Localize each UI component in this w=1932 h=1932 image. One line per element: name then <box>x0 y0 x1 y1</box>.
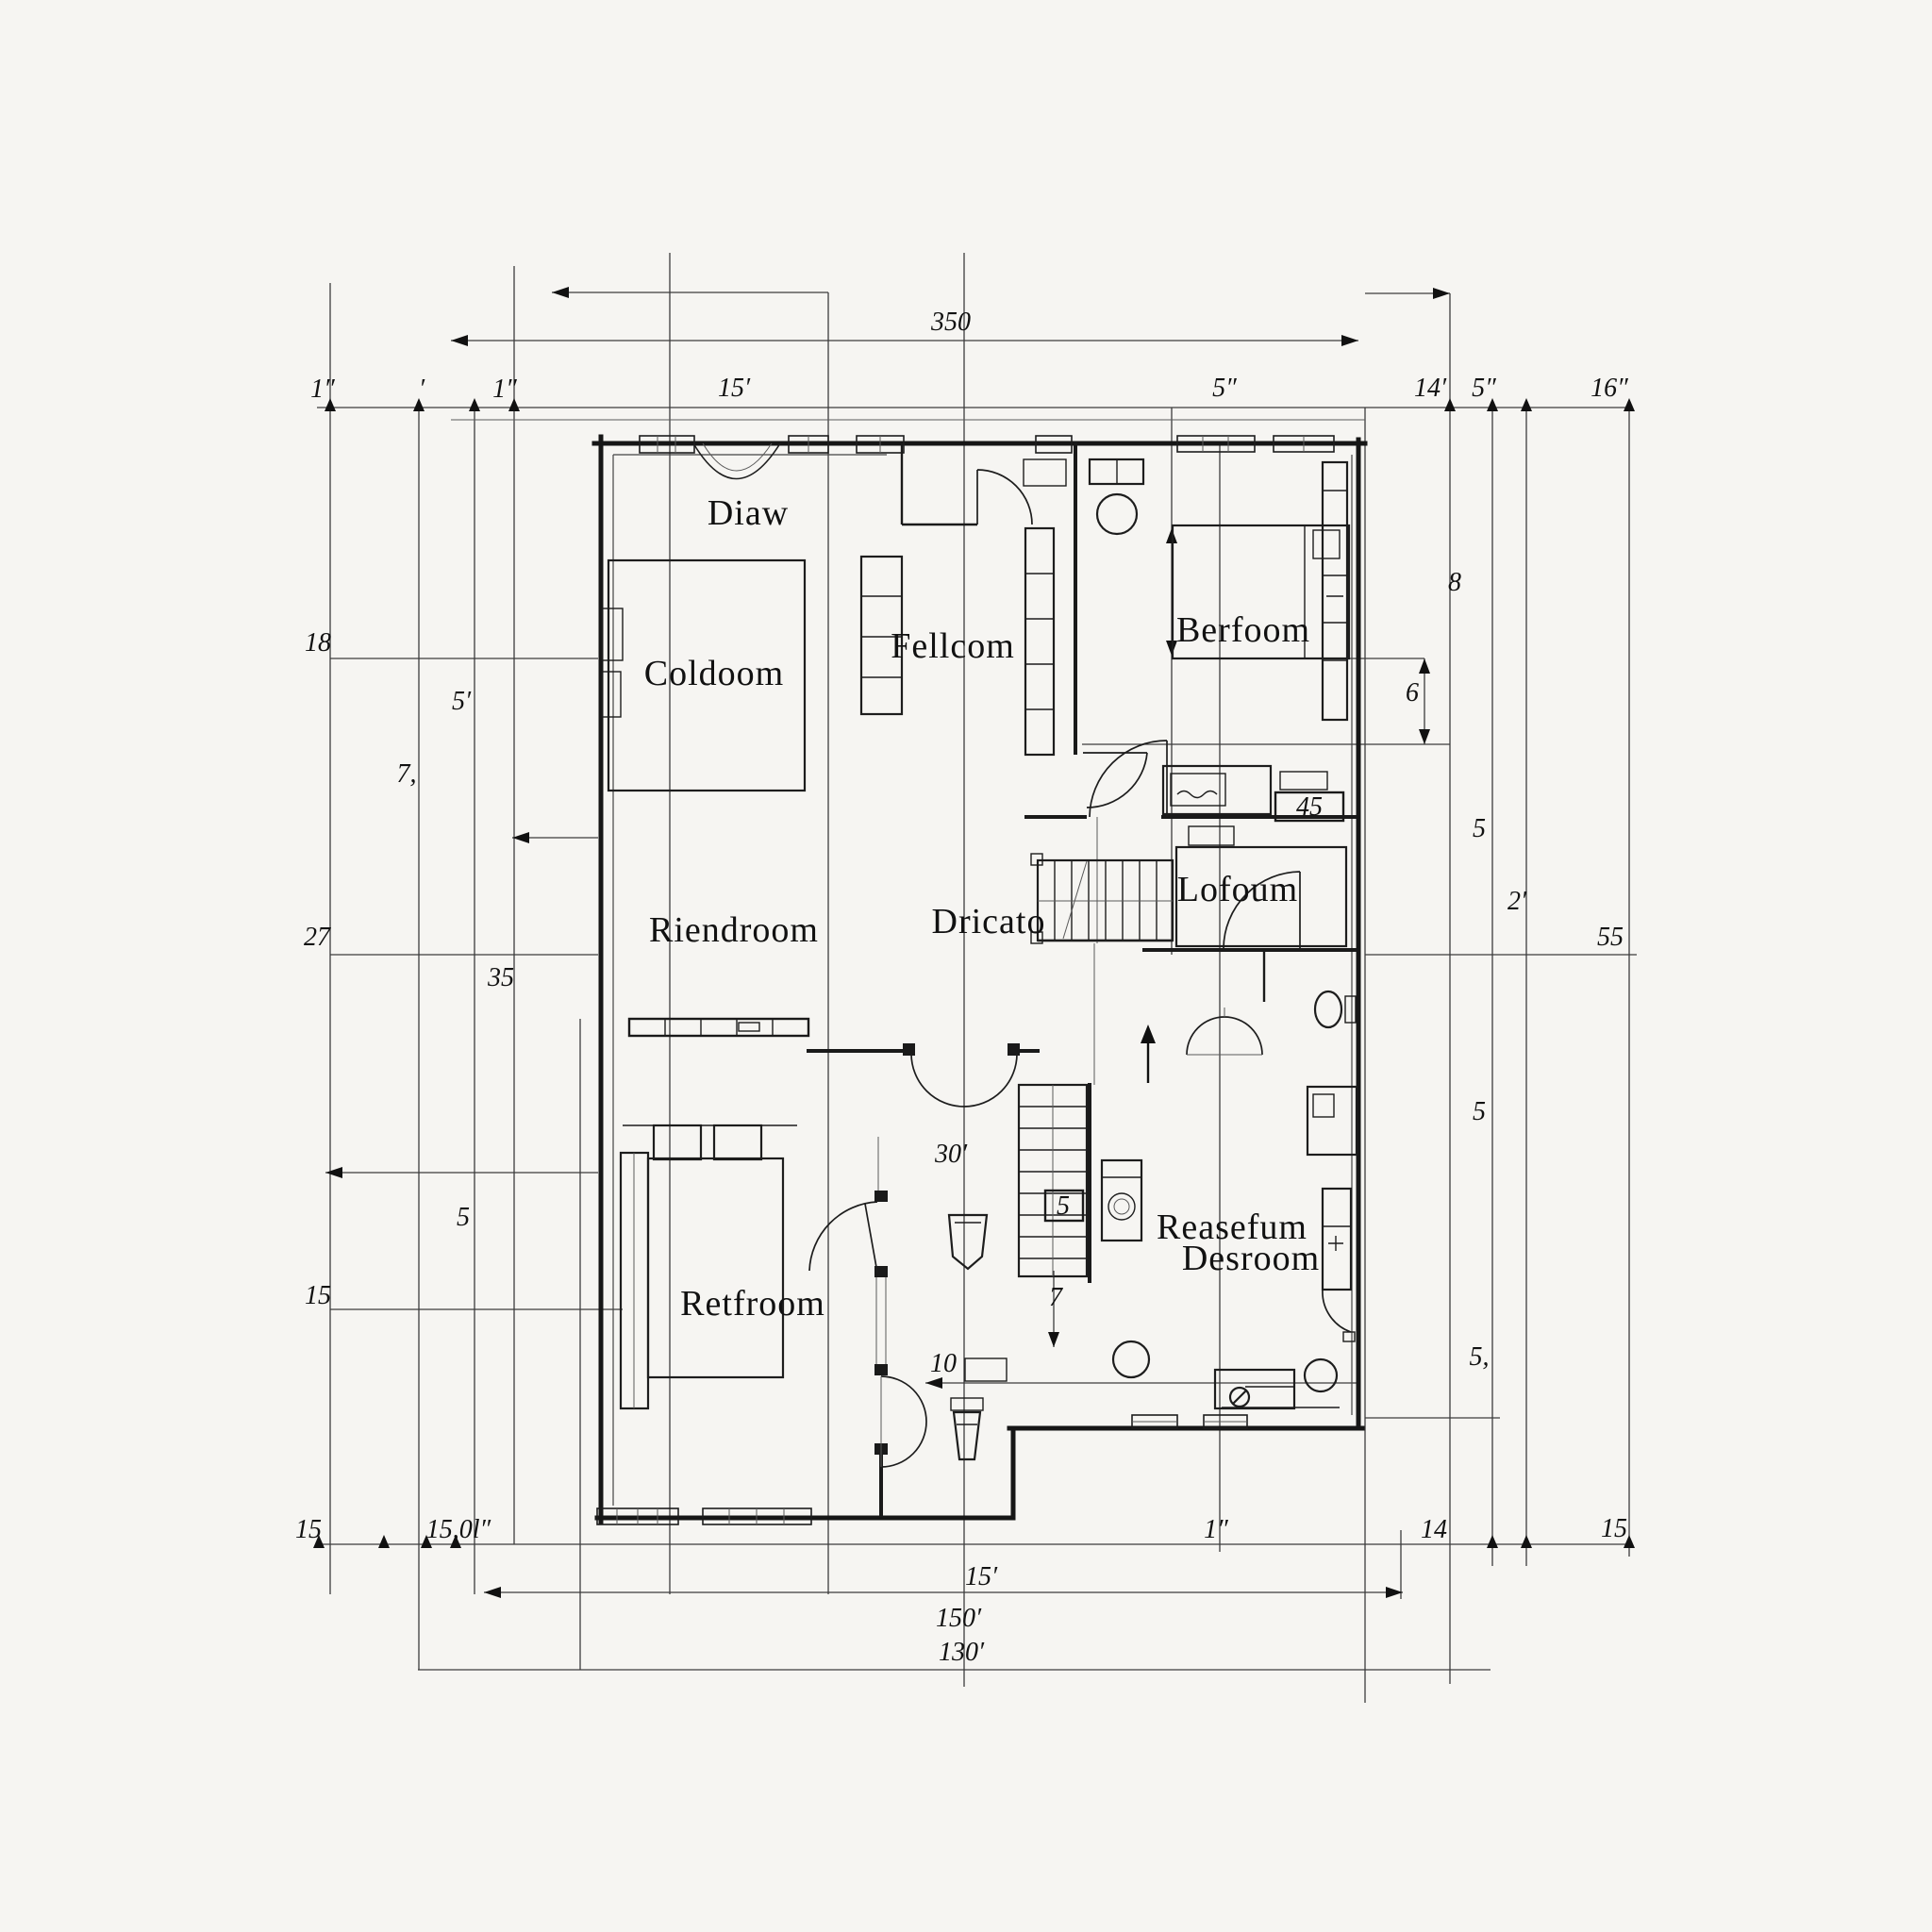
dim-bottom-150l: 15,0l″ <box>426 1515 491 1544</box>
stool-icon <box>1113 1341 1149 1377</box>
dim-right-55: 55 <box>1597 923 1624 952</box>
dim-bottom-150ft: 150′ <box>936 1604 982 1633</box>
windows <box>597 436 1340 1524</box>
dim-left-5: 5 <box>457 1203 470 1232</box>
room-label-lofoum: Lofoum <box>1177 870 1298 909</box>
wall-closet-icon <box>1307 1087 1357 1155</box>
corridor-closet-icon <box>1323 1189 1351 1290</box>
dim-label-5-box: 5 <box>1057 1191 1070 1221</box>
room-label-desroom: Desroom <box>1182 1239 1320 1278</box>
toilet-icon <box>1315 991 1356 1027</box>
dim-label-45: 45 <box>1296 792 1323 822</box>
dim-bottom-1in: 1″ <box>1204 1515 1228 1544</box>
room-label-riendroom: Riendroom <box>649 910 819 950</box>
interior-walls <box>629 443 1355 1515</box>
dim-top-4: 15′ <box>718 374 751 403</box>
dim-left-15b: 15 <box>295 1515 322 1544</box>
dim-left-27: 27 <box>304 923 331 952</box>
hall-double-door-left <box>911 1054 964 1107</box>
retfroom-wardrobe-icon <box>621 1153 648 1408</box>
dimension-labels: 1″ ′ 1″ 15′ 5″ 14′ 5″ 16″ 350 18 5′ 7, 2… <box>295 308 1628 1667</box>
dim-bottom-15ft: 15′ <box>965 1562 998 1591</box>
dim-350: 350 <box>930 308 971 337</box>
shower-door-icon <box>1187 1008 1262 1055</box>
dim-left-18: 18 <box>305 628 331 658</box>
room-labels: Diaw Coldoom Fellcom Berfoom Riendroom D… <box>644 493 1320 1324</box>
room-label-diaw: Diaw <box>708 493 789 533</box>
dim-top-2: ′ <box>419 375 425 404</box>
dim-right-5b: 5 <box>1473 1097 1486 1126</box>
dim-right-8: 8 <box>1448 568 1461 597</box>
hall-toilet-icon <box>951 1398 983 1459</box>
dimension-arrows <box>313 287 1635 1598</box>
dim-top-5: 5″ <box>1212 374 1237 403</box>
dim-right-5a: 5 <box>1473 814 1486 843</box>
dim-right-6: 6 <box>1406 678 1419 708</box>
dim-mid-30ft: 30′ <box>934 1140 968 1169</box>
chair-icon <box>1305 1359 1337 1391</box>
dim-top-8: 16″ <box>1591 374 1628 403</box>
dim-mid-7: 7 <box>1049 1283 1063 1312</box>
dim-top-7: 5″ <box>1472 374 1496 403</box>
dim-left-7: 7, <box>397 759 417 789</box>
closet-door-arc <box>1323 1290 1351 1332</box>
kitchen-door-arc <box>1087 753 1147 808</box>
stairs-upper <box>1019 1085 1087 1276</box>
dim-mid-10: 10 <box>930 1349 957 1378</box>
counter-icon <box>1024 459 1066 486</box>
room-label-dricato: Dricato <box>932 902 1046 941</box>
room-label-berfoom: Berfoom <box>1176 610 1310 650</box>
retfroom-door-leaf <box>865 1204 877 1273</box>
dim-top-6: 14′ <box>1414 374 1447 403</box>
dim-left-15a: 15 <box>305 1281 331 1310</box>
round-table-icon <box>1097 494 1137 534</box>
room-label-retfroom: Retfroom <box>680 1284 825 1324</box>
stairs-lower <box>1031 854 1173 943</box>
dim-right-2ft: 2′ <box>1507 887 1527 916</box>
hall-swing-door-arc <box>881 1376 926 1467</box>
dim-bottom-15: 15 <box>1601 1514 1627 1543</box>
stove-icon <box>1090 459 1143 484</box>
dim-left-5ft: 5′ <box>452 687 472 716</box>
dim-top-3: 1″ <box>492 375 517 404</box>
washing-machine-icon <box>1102 1160 1141 1241</box>
dim-bottom-130ft: 130′ <box>939 1638 985 1667</box>
dim-bottom-14: 14 <box>1421 1515 1447 1544</box>
stair-direction-arrow <box>1141 1024 1156 1083</box>
floor-plan-drawing: 45 5 Diaw Coldoom Fellcom Berfoom Riendr… <box>0 0 1932 1932</box>
hall-shelf-icon <box>965 1358 1007 1381</box>
kitchen-cabinet-strip-right-icon <box>1025 528 1054 755</box>
room-label-coldoom: Coldoom <box>644 654 784 693</box>
dim-left-35: 35 <box>487 963 514 992</box>
hall-double-door-right <box>964 1054 1017 1107</box>
blueprint-canvas: 45 5 Diaw Coldoom Fellcom Berfoom Riendr… <box>0 0 1932 1932</box>
dim-right-5c: 5, <box>1470 1342 1490 1372</box>
room-label-fellcom: Fellcom <box>891 626 1015 666</box>
berfoom-closet-icon <box>1323 462 1347 720</box>
desk-icon <box>1215 1370 1294 1408</box>
hall-sink-icon <box>949 1215 987 1269</box>
dim-top-1: 1″ <box>310 375 335 404</box>
